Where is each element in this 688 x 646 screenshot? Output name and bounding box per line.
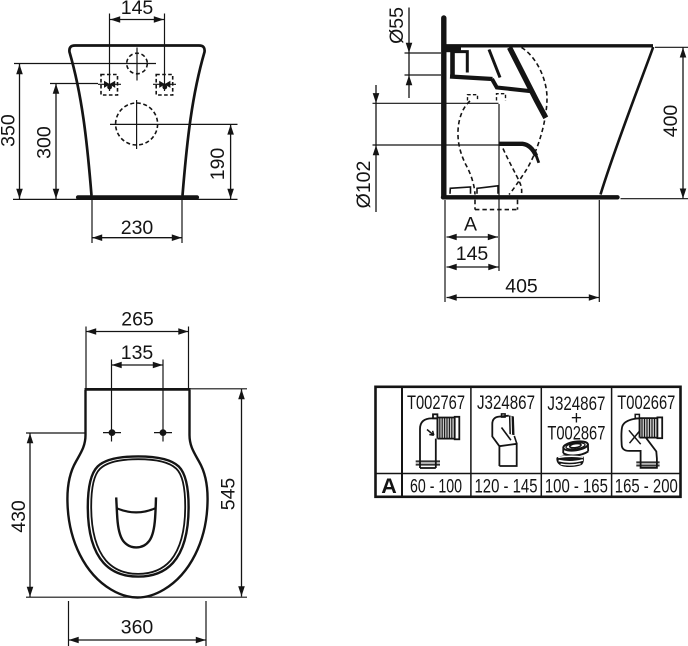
svg-text:145: 145: [121, 0, 154, 19]
svg-text:J324867: J324867: [477, 393, 535, 414]
svg-text:230: 230: [121, 217, 154, 239]
svg-text:T002667: T002667: [617, 393, 675, 414]
svg-text:265: 265: [121, 309, 154, 331]
svg-text:T002767: T002767: [407, 393, 465, 414]
svg-text:A: A: [381, 474, 397, 498]
svg-text:300: 300: [34, 126, 56, 159]
svg-text:190: 190: [207, 148, 229, 181]
svg-text:405: 405: [505, 276, 538, 298]
svg-text:350: 350: [0, 114, 20, 147]
svg-text:A: A: [464, 214, 477, 236]
svg-text:145: 145: [456, 243, 489, 265]
svg-text:100 - 165: 100 - 165: [545, 477, 608, 498]
svg-text:60 - 100: 60 - 100: [410, 477, 462, 498]
svg-text:430: 430: [8, 500, 30, 533]
svg-text:Ø102: Ø102: [353, 161, 375, 209]
svg-text:360: 360: [121, 617, 154, 639]
svg-text:545: 545: [217, 478, 239, 511]
svg-text:135: 135: [121, 342, 154, 364]
svg-text:120 - 145: 120 - 145: [475, 477, 538, 498]
svg-text:165 - 200: 165 - 200: [615, 477, 678, 498]
svg-text:Ø55: Ø55: [386, 7, 408, 44]
svg-text:400: 400: [660, 105, 682, 138]
